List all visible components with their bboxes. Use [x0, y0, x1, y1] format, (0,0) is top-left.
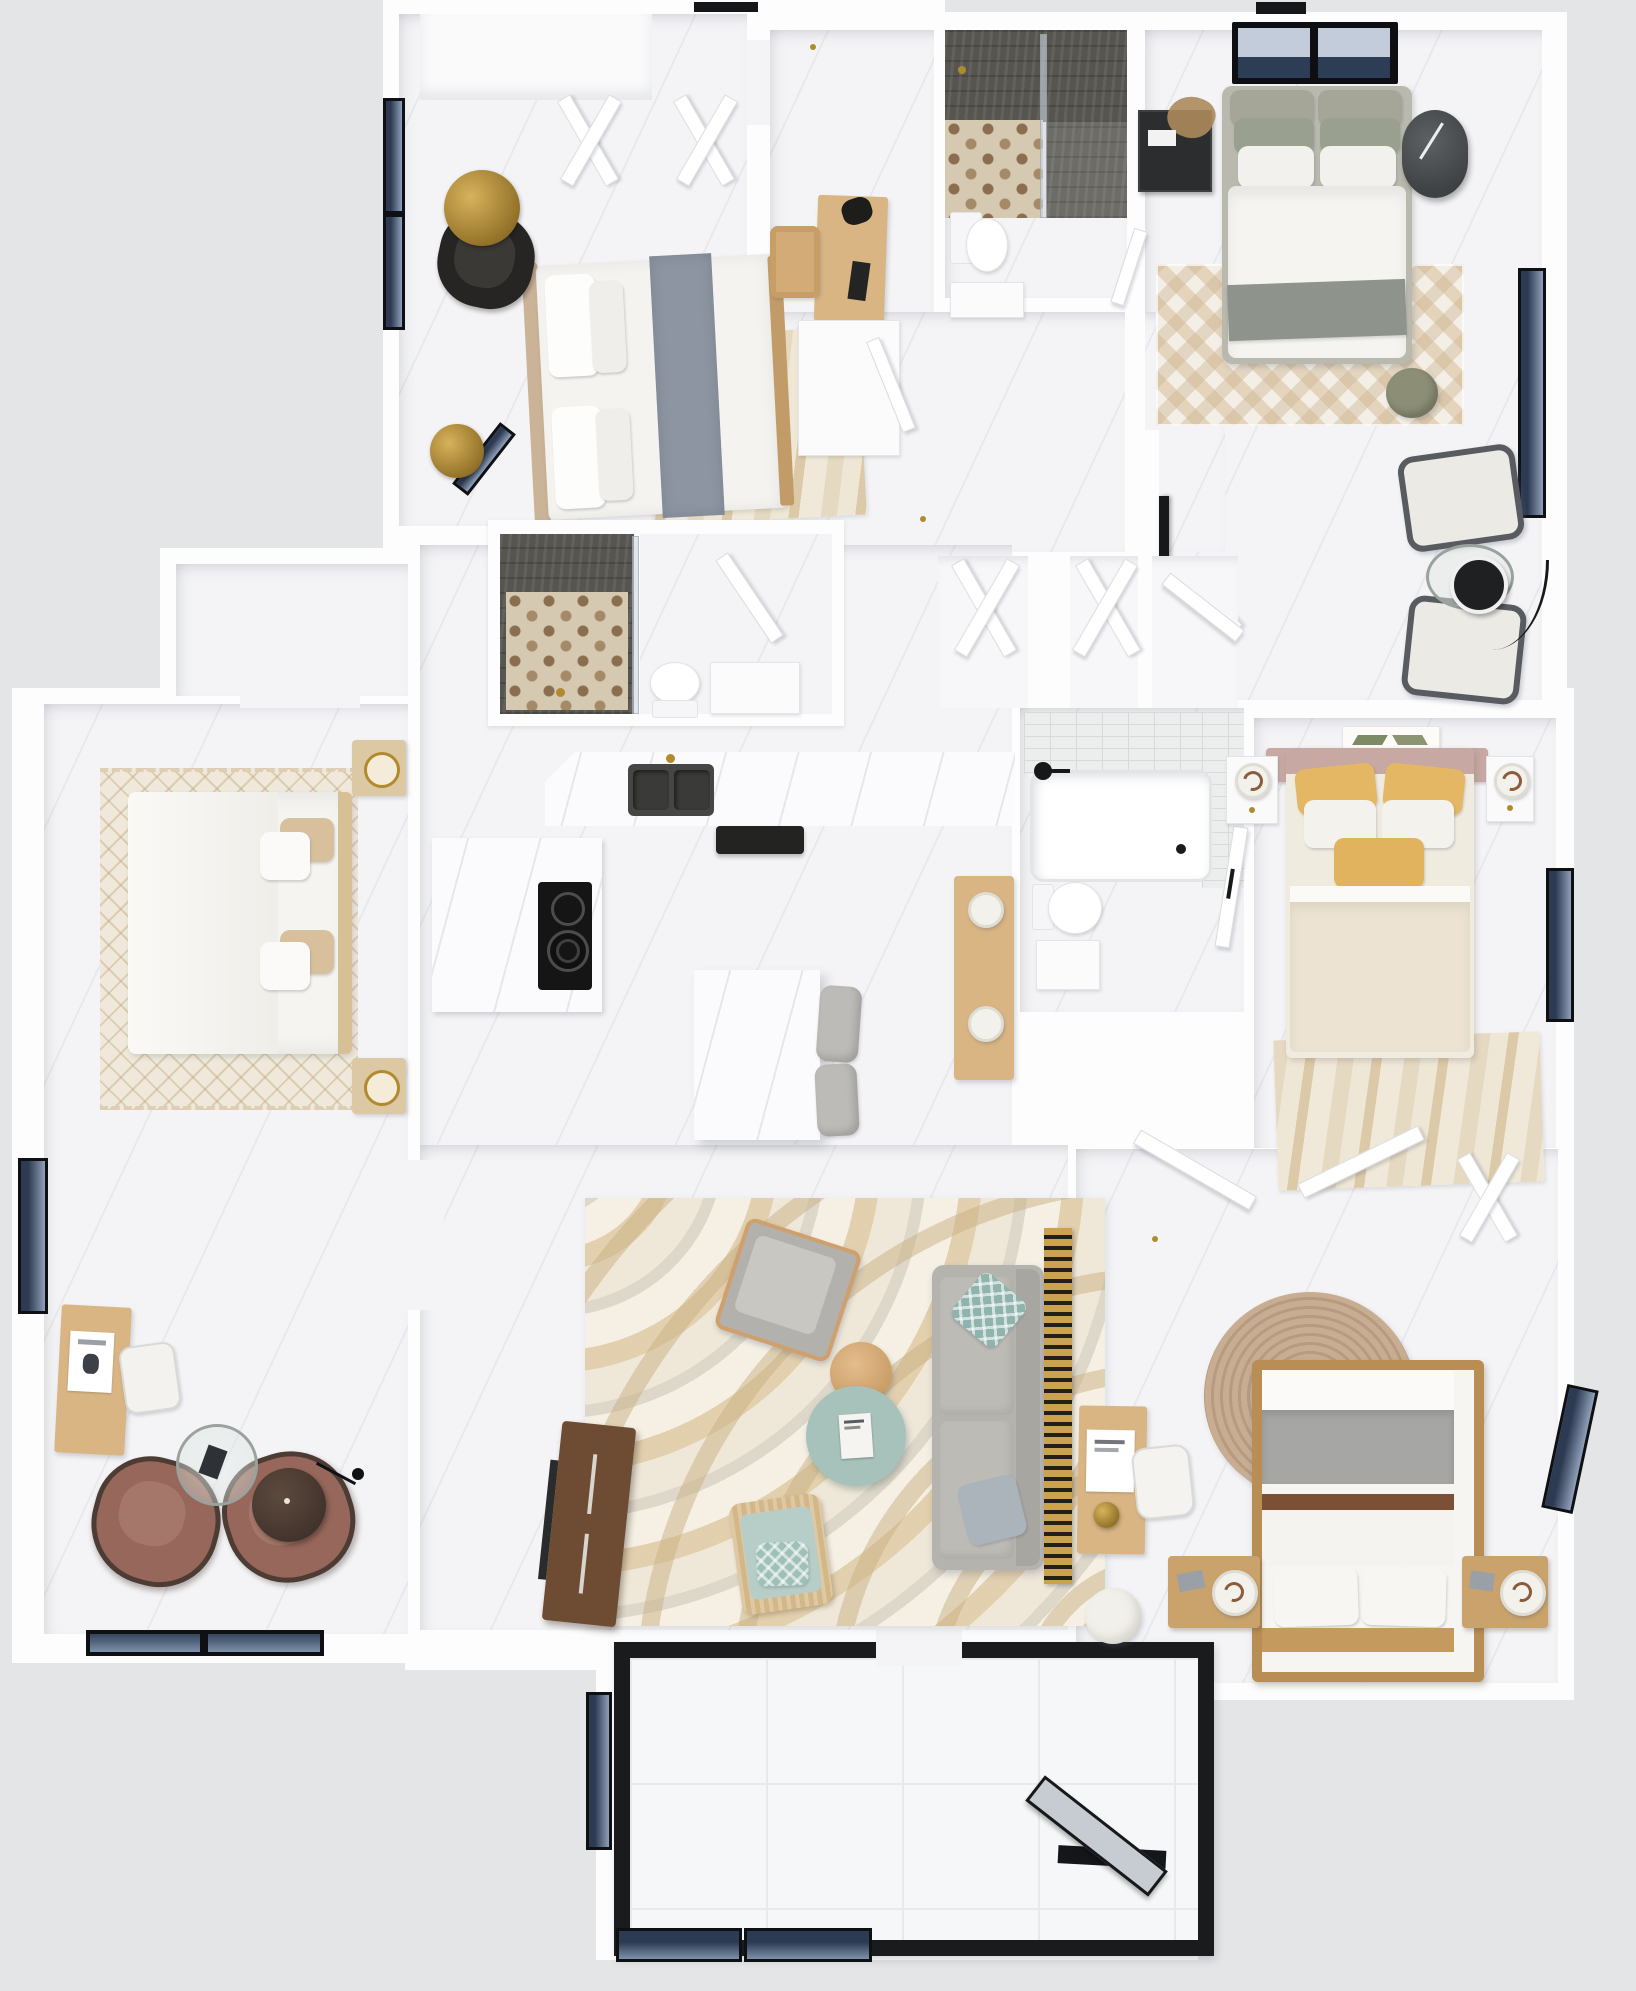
- stick-decor: [1419, 122, 1444, 159]
- white-pillow-b: [260, 942, 310, 990]
- floor-plan: [0, 0, 1636, 1991]
- sink-basin-left: [633, 770, 669, 810]
- bath1-vanity: [950, 282, 1024, 318]
- white-fold: [1262, 1370, 1454, 1410]
- master-nightstand-2: [352, 1058, 406, 1114]
- master-closet-floor: [176, 564, 408, 696]
- entry-door-top-1: [694, 2, 758, 12]
- kitchen-cooktop: [538, 882, 592, 990]
- bath2-shower-floor: [506, 592, 628, 710]
- kitchen-sink: [628, 764, 714, 816]
- tray: [1148, 130, 1176, 146]
- leaf-print: [1392, 735, 1428, 745]
- entry-door-top-2: [1256, 2, 1306, 14]
- bedroom3-bed: [1252, 1360, 1484, 1682]
- duvet-fold: [128, 792, 278, 1054]
- white-pillow-2: [1320, 146, 1396, 188]
- patio-window-bottom-2: [744, 1928, 872, 1962]
- master-drum-table: [252, 1468, 326, 1542]
- gray-blanket: [1262, 1410, 1454, 1484]
- bath1-shower-head: [958, 66, 966, 74]
- table-book: [198, 1444, 227, 1479]
- kitchen-faucet: [666, 754, 675, 763]
- window-pane: [1238, 28, 1310, 78]
- bath3-tub: [1030, 770, 1212, 882]
- bedroom1-drum-table: [1402, 110, 1468, 198]
- door-knob-2: [920, 516, 926, 522]
- bath2-glass-screen: [632, 536, 639, 714]
- patio: [614, 1642, 1214, 1956]
- book-text-lines: [844, 1426, 860, 1430]
- door-pull: [1226, 869, 1235, 899]
- bedroom1-window-right: [1518, 268, 1546, 518]
- living-coffee-table: [806, 1386, 906, 1486]
- bedroom1-bed: [1222, 86, 1412, 364]
- island-stool-1: [815, 985, 862, 1064]
- brass-tray: [364, 1070, 400, 1106]
- master-desk-chair: [118, 1340, 183, 1415]
- bed-pillow-3: [588, 280, 627, 374]
- console-lamp-2: [968, 1006, 1004, 1042]
- gray-throw: [1227, 279, 1407, 341]
- island-stool-2: [814, 1063, 860, 1137]
- poster-lines: [1095, 1440, 1125, 1445]
- bedroom3-nightstand-2: [1462, 1556, 1548, 1628]
- bedroom1-window-top: [1232, 22, 1398, 84]
- faucet-arm: [1048, 769, 1070, 773]
- living-rattan-chair: [728, 1492, 835, 1616]
- bedroom3-nightstand-1: [1168, 1556, 1260, 1628]
- door-knob-3: [1152, 1236, 1158, 1242]
- patio-window-bottom-1: [616, 1928, 742, 1962]
- gray-book: [1469, 1570, 1495, 1591]
- closet-post-1: [1028, 556, 1070, 708]
- patio-entry-opening: [876, 1630, 962, 1666]
- chair-seat: [112, 1474, 192, 1553]
- bedroom2-closet-recess: [420, 14, 652, 100]
- gray-book: [1177, 1570, 1206, 1592]
- poster-lines: [1094, 1448, 1118, 1452]
- burner-1: [551, 892, 585, 926]
- living-slat-shelf: [1044, 1228, 1072, 1584]
- white-duvet: [1262, 1510, 1454, 1566]
- opening-bedroom2-deskroom: [747, 40, 770, 125]
- bedroom2-window-1: [383, 98, 405, 214]
- lattice-pillow: [756, 1541, 810, 1587]
- kitchen-counter: [545, 752, 1015, 826]
- desk-gold-lamp: [1093, 1502, 1119, 1528]
- desk-poster: [67, 1331, 114, 1393]
- bath2-toilet: [646, 662, 704, 718]
- bed3-pillow-1: [1273, 1567, 1359, 1628]
- opening-living-to-master: [400, 1160, 444, 1310]
- bedroom1-armchair-1: [1396, 442, 1526, 553]
- console-lamp-1: [968, 892, 1004, 928]
- chair-cushion: [733, 1234, 838, 1336]
- master-desk: [54, 1304, 132, 1455]
- bedroom2-bed: [521, 249, 798, 524]
- yellow-nightstand-2: [1486, 756, 1534, 822]
- bath3-tub-faucet: [1034, 762, 1052, 780]
- window-pane: [90, 1634, 200, 1652]
- window-pane: [208, 1634, 320, 1652]
- bath1-shower-side: [1046, 120, 1127, 218]
- brown-bar: [1262, 1494, 1454, 1510]
- bedroom3-desk-chair: [1130, 1443, 1195, 1521]
- coffee-table-book: [839, 1413, 874, 1459]
- hall-console-table: [954, 876, 1014, 1080]
- yellow-nightstand-1: [1226, 756, 1278, 824]
- window-pane: [1318, 28, 1390, 78]
- sink-basin-right: [674, 770, 710, 810]
- bedroom2-desk-chair: [770, 226, 820, 298]
- headboard-bar: [1262, 1628, 1454, 1652]
- cream-duvet: [1290, 902, 1470, 1052]
- toilet-bowl: [1048, 882, 1102, 934]
- burner-2: [547, 930, 589, 972]
- bath1-shower-walls: [945, 30, 1127, 122]
- bath2-vanity: [710, 662, 800, 714]
- bedroom1-pouf: [1386, 368, 1438, 418]
- console-handle: [587, 1454, 597, 1514]
- book-text-lines: [844, 1419, 864, 1423]
- toilet-tank: [652, 700, 698, 718]
- bath1-glass-screen: [1040, 34, 1047, 218]
- desk-poster: [1086, 1430, 1135, 1493]
- living-sofa: [932, 1265, 1044, 1570]
- opening-closet-to-master: [240, 694, 360, 708]
- table-dot: [284, 1498, 290, 1504]
- master-window-bottom: [86, 1630, 324, 1656]
- bedroom2-gold-lamp-2: [430, 424, 484, 478]
- yellow-window-right: [1546, 868, 1574, 1022]
- bath2-gold-drain: [556, 688, 565, 697]
- master-floor-lamp: [352, 1468, 364, 1480]
- closet-post-2: [1138, 556, 1152, 708]
- kitchen-island: [694, 970, 820, 1140]
- hall-bedroom1-wall: [1125, 312, 1145, 552]
- patio-window-left: [586, 1692, 612, 1850]
- bath3-vanity: [1036, 940, 1100, 990]
- leaf-print: [1352, 735, 1388, 745]
- brass-tray: [364, 752, 400, 788]
- tub-drain: [1176, 844, 1186, 854]
- poster-mark: [78, 1339, 106, 1345]
- bath1-shower-floor: [945, 120, 1043, 218]
- accent-pillow: [1334, 838, 1424, 888]
- master-bed: [128, 792, 352, 1054]
- master-glass-table: [176, 1424, 258, 1506]
- drawer-knob: [1249, 807, 1255, 813]
- bath1-toilet: [950, 212, 1006, 278]
- bath3-toilet: [1032, 880, 1104, 934]
- master-nightstand-1: [352, 740, 406, 796]
- console-handle: [579, 1534, 589, 1594]
- living-pouf: [1085, 1588, 1141, 1644]
- bedroom2-window-2: [383, 214, 405, 330]
- bed-pillow-4: [595, 408, 634, 502]
- yellow-bed: [1286, 748, 1474, 1058]
- kitchen-black-appliance: [716, 826, 804, 854]
- bed3-pillow-2: [1361, 1567, 1447, 1628]
- drawer-knob: [1507, 805, 1513, 811]
- toilet-bowl: [966, 218, 1008, 272]
- door-knob-1: [810, 44, 816, 50]
- bedroom2-gold-floor-lamp: [444, 170, 520, 246]
- white-pillow-1: [1238, 146, 1314, 188]
- master-window-left: [18, 1158, 48, 1314]
- white-pillow-a: [260, 832, 310, 880]
- poster-figure: [82, 1353, 99, 1374]
- headboard-wood: [338, 792, 352, 1054]
- bedroom1-nightstand: [1138, 110, 1212, 192]
- toilet-bowl: [650, 662, 700, 704]
